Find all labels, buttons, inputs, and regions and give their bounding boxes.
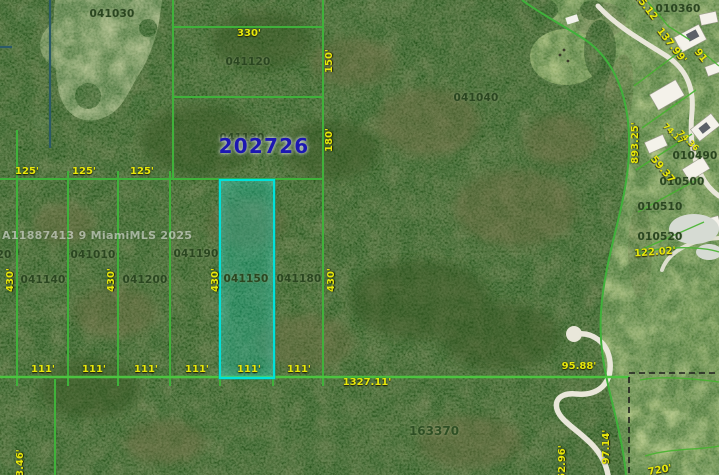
section-township-range-label: 202726 [219, 134, 310, 158]
label-parcel-041150: 041150 [223, 274, 268, 285]
label-dim-430-4: 430' [327, 268, 337, 292]
label-parcel-010490: 010490 [672, 151, 717, 162]
label-dim-152-96: 152.96' [558, 445, 568, 475]
label-dim-125-3: 125' [130, 167, 154, 177]
label-dim-111-5: 111' [237, 365, 261, 375]
label-parcel-partial-20: 20 [0, 250, 12, 261]
label-parcel-041190: 041190 [173, 249, 218, 260]
label-dim-111-2: 111' [82, 365, 106, 375]
label-parcel-041030: 041030 [89, 9, 134, 20]
label-parcel-041010: 041010 [70, 250, 115, 261]
label-dim-180: 180' [325, 128, 335, 152]
label-parcel-010510: 010510 [637, 202, 682, 213]
label-dim-111-6: 111' [287, 365, 311, 375]
label-dim-893-25: 893.25' [631, 122, 641, 164]
label-dim-150: 150' [325, 49, 335, 73]
label-parcel-163370: 163370 [409, 425, 459, 437]
label-parcel-041200: 041200 [122, 275, 167, 286]
label-dim-91: 91 [692, 47, 708, 64]
label-parcel-041140: 041140 [20, 275, 65, 286]
mls-watermark: A11887413 9 MiamiMLS 2025 [2, 229, 192, 242]
label-dim-1327-11: 1327.11' [343, 378, 392, 388]
label-dim-111-4: 111' [185, 365, 209, 375]
label-dim-430-2: 430' [107, 268, 117, 292]
label-parcel-041180: 041180 [276, 274, 321, 285]
label-dim-720: 720' [647, 464, 672, 475]
label-parcel-010520: 010520 [637, 232, 682, 243]
label-dim-111-3: 111' [134, 365, 158, 375]
label-dim-430-1: 430' [6, 268, 16, 292]
label-dim-111-1: 111' [31, 365, 55, 375]
label-parcel-041120: 041120 [225, 57, 270, 68]
label-dim-3-46: 3.46' [16, 449, 26, 475]
label-dim-122-02: 122.02' [634, 247, 676, 260]
label-dim-95-88: 95.88' [562, 362, 597, 372]
label-dim-125-2: 125' [72, 167, 96, 177]
label-parcel-010360: 010360 [655, 4, 700, 15]
map-viewport[interactable]: 0410300411200411300410400410100411400412… [0, 0, 719, 475]
label-dim-430-3: 430' [211, 268, 221, 292]
label-dim-125-1: 125' [15, 167, 39, 177]
label-dim-137-99: 137.99' [654, 27, 688, 66]
label-parcel-041040: 041040 [453, 93, 498, 104]
label-dim-330: 330' [237, 29, 261, 39]
label-dim-97-14: 97.14' [602, 430, 612, 465]
